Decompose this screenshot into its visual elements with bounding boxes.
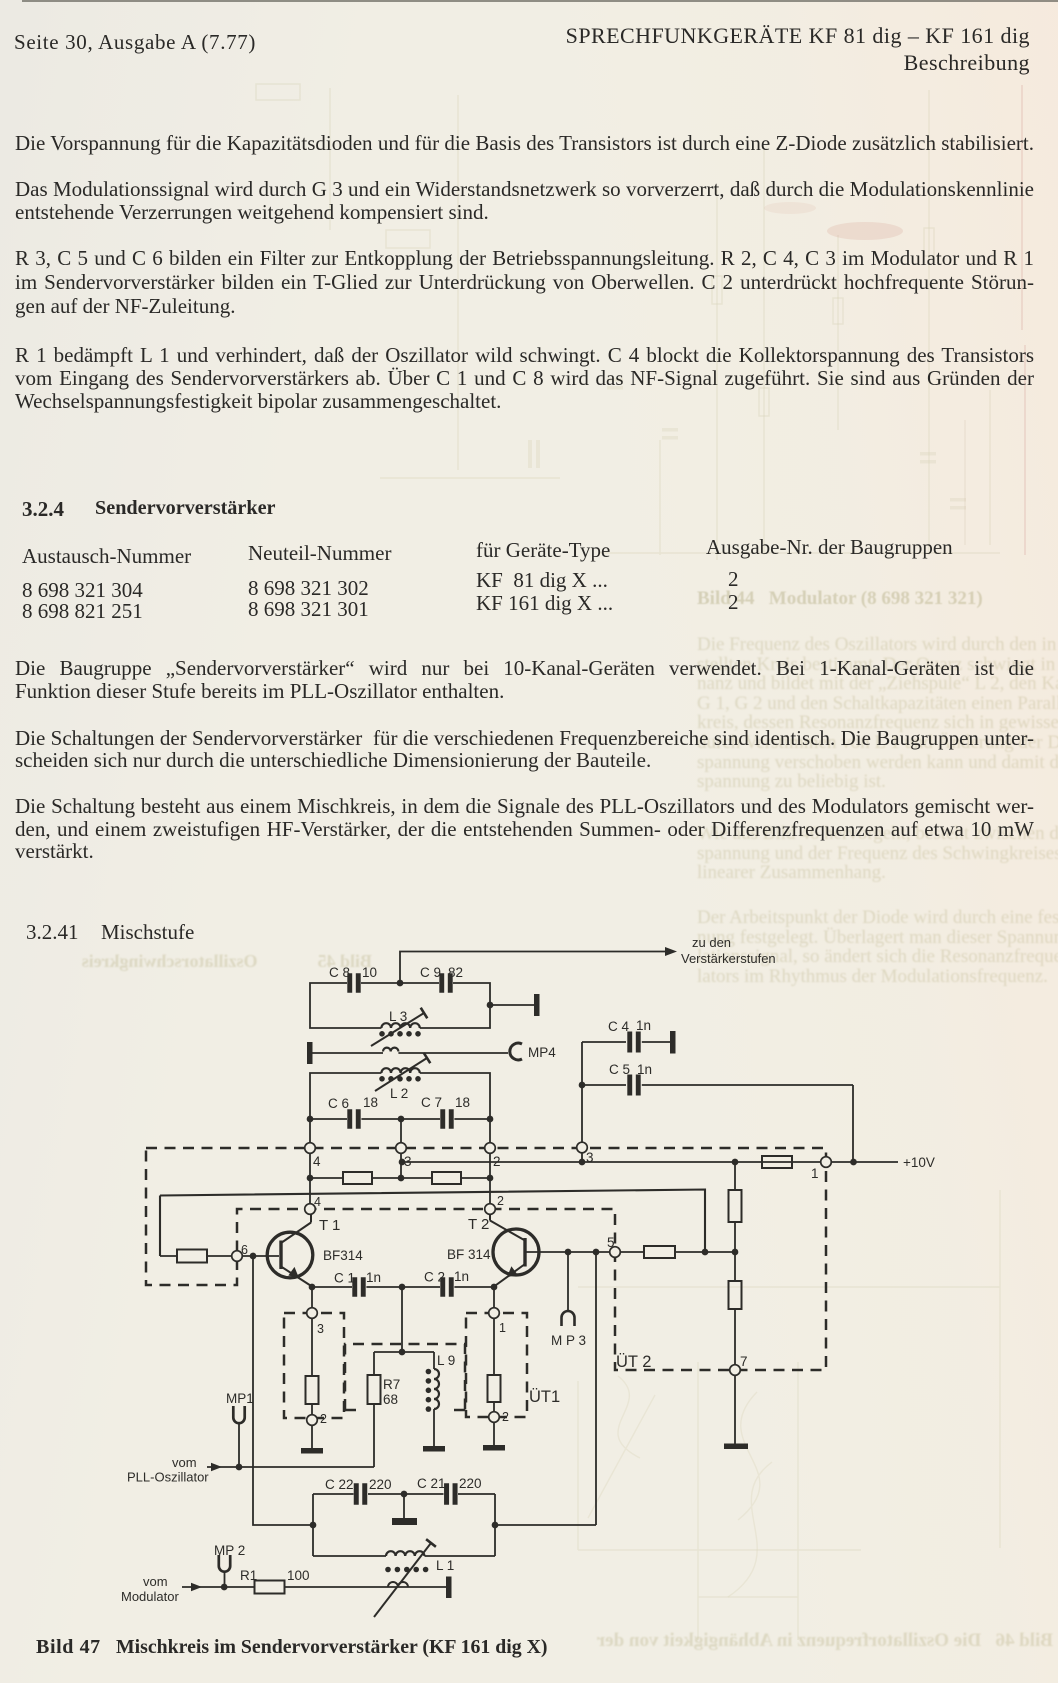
svg-text:BF314: BF314 bbox=[323, 1248, 363, 1263]
svg-text:PLL-Oszillator: PLL-Oszillator bbox=[127, 1470, 209, 1485]
svg-text:Verstärkerstufen: Verstärkerstufen bbox=[681, 951, 776, 966]
svg-text:ÜT1: ÜT1 bbox=[529, 1388, 560, 1406]
svg-text:4: 4 bbox=[313, 1154, 321, 1169]
svg-text:7: 7 bbox=[740, 1354, 748, 1369]
svg-text:1: 1 bbox=[499, 1321, 506, 1335]
svg-text:C 6: C 6 bbox=[328, 1096, 349, 1111]
svg-text:4: 4 bbox=[314, 1195, 321, 1209]
svg-text:MP 2: MP 2 bbox=[214, 1543, 245, 1558]
svg-text:6: 6 bbox=[241, 1243, 248, 1257]
svg-text:3: 3 bbox=[317, 1322, 324, 1336]
svg-text:2: 2 bbox=[502, 1410, 509, 1424]
svg-text:C 2: C 2 bbox=[424, 1270, 445, 1285]
svg-text:1n: 1n bbox=[637, 1062, 652, 1077]
svg-text:C 8: C 8 bbox=[329, 965, 350, 980]
svg-text:2: 2 bbox=[497, 1194, 504, 1208]
svg-text:100: 100 bbox=[287, 1568, 310, 1583]
svg-text:L 1: L 1 bbox=[436, 1558, 454, 1573]
svg-text:+10V: +10V bbox=[903, 1155, 935, 1170]
svg-text:Modulator: Modulator bbox=[121, 1589, 179, 1604]
svg-text:C 4: C 4 bbox=[608, 1019, 630, 1034]
svg-text:ÜT 2: ÜT 2 bbox=[616, 1353, 651, 1371]
svg-text:68: 68 bbox=[383, 1392, 398, 1407]
svg-text:T 2: T 2 bbox=[468, 1216, 489, 1233]
svg-text:zu den: zu den bbox=[692, 935, 731, 950]
svg-text:C 21: C 21 bbox=[417, 1476, 446, 1491]
svg-text:L 9: L 9 bbox=[437, 1353, 455, 1368]
svg-text:C 1: C 1 bbox=[334, 1271, 355, 1286]
svg-text:C 22: C 22 bbox=[325, 1477, 354, 1492]
svg-text:220: 220 bbox=[459, 1476, 482, 1491]
svg-text:3: 3 bbox=[586, 1150, 594, 1165]
svg-text:T 1: T 1 bbox=[319, 1217, 340, 1234]
svg-text:82: 82 bbox=[448, 965, 463, 980]
svg-text:3: 3 bbox=[404, 1154, 412, 1169]
svg-text:1n: 1n bbox=[454, 1269, 469, 1284]
svg-text:vom: vom bbox=[143, 1574, 168, 1589]
svg-text:220: 220 bbox=[369, 1477, 392, 1492]
svg-text:L 3: L 3 bbox=[389, 1009, 407, 1024]
svg-text:2: 2 bbox=[493, 1154, 501, 1169]
svg-text:1n: 1n bbox=[636, 1018, 651, 1033]
svg-text:R1: R1 bbox=[240, 1568, 257, 1583]
svg-text:MP4: MP4 bbox=[528, 1045, 556, 1060]
svg-text:1: 1 bbox=[811, 1166, 819, 1181]
svg-text:1n: 1n bbox=[366, 1270, 381, 1285]
svg-text:2: 2 bbox=[320, 1412, 327, 1426]
svg-text:C 9: C 9 bbox=[420, 965, 441, 980]
svg-text:10: 10 bbox=[362, 965, 377, 980]
svg-text:L 2: L 2 bbox=[390, 1086, 408, 1101]
svg-text:C 7: C 7 bbox=[421, 1095, 442, 1110]
svg-text:18: 18 bbox=[363, 1095, 378, 1110]
svg-text:18: 18 bbox=[455, 1095, 470, 1110]
svg-text:M P 3: M P 3 bbox=[551, 1333, 586, 1348]
svg-text:5: 5 bbox=[607, 1235, 615, 1250]
svg-text:C 5: C 5 bbox=[609, 1062, 630, 1077]
svg-text:vom: vom bbox=[172, 1455, 197, 1470]
svg-text:BF 314: BF 314 bbox=[447, 1247, 491, 1262]
svg-text:MP1: MP1 bbox=[226, 1391, 254, 1406]
svg-text:R7: R7 bbox=[383, 1377, 400, 1392]
